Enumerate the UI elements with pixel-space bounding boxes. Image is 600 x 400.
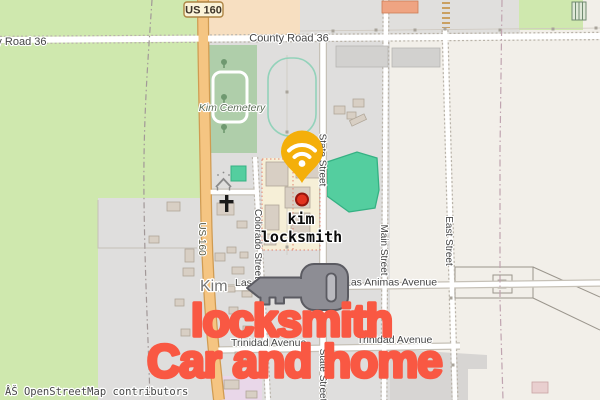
- overlay-text-line2: Car and home: [147, 335, 442, 387]
- road-label-county-road-36-east: County Road 36: [249, 33, 329, 45]
- place-label-kim-town: Kim: [200, 278, 228, 295]
- us160-shield-label: US 160: [185, 5, 222, 17]
- road-label-main-street: Main Street: [378, 224, 389, 275]
- place-label-kim-cemetery: Kim Cemetery: [199, 102, 266, 114]
- poi-label-line2: locksmith: [261, 228, 342, 246]
- osm-attribution: ÂŠ OpenStreetMap contributors: [5, 385, 188, 398]
- poi-label-line1: kim: [287, 210, 314, 228]
- red-dot-marker[interactable]: [296, 194, 308, 206]
- us160-shield: US 160: [184, 2, 223, 17]
- road-label-us160-vertical: US 160: [196, 222, 207, 256]
- road-label-las-animas-east: Las Animas Avenue: [345, 277, 437, 289]
- road-label-county-road-36-west: County Road 36: [0, 36, 47, 48]
- road-label-east-street: East Street: [443, 216, 454, 266]
- map-canvas[interactable]: County Road 36 County Road 36 State Stre…: [0, 0, 600, 400]
- map-viewport[interactable]: County Road 36 County Road 36 State Stre…: [0, 0, 600, 400]
- pond-small: [231, 166, 246, 181]
